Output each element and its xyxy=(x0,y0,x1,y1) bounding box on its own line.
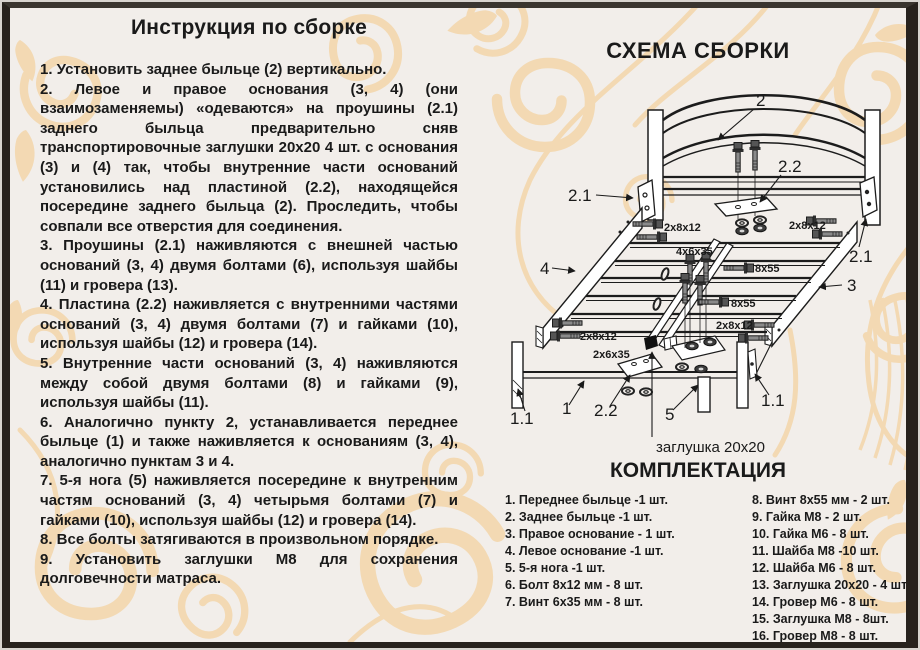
part-item: 3. Правое основание - 1 шт. xyxy=(505,526,752,543)
diagram-title: СХЕМА СБОРКИ xyxy=(478,38,918,64)
part-item: 1. Переднее быльце -1 шт. xyxy=(505,492,752,509)
instruction-step: 9. Установить заглушки М8 для сохранения… xyxy=(40,550,458,589)
parts-column-1: 1. Переднее быльце -1 шт. 2. Заднее быль… xyxy=(505,492,752,645)
callout-front-leg-left: 1.1 xyxy=(510,409,534,428)
callout-fifth-leg: 5 xyxy=(665,405,674,424)
right-base-drawing xyxy=(756,222,857,374)
bolt-label-2x8x12-topleft: 2х8х12 xyxy=(664,222,701,234)
bolt-label-2x8x12-midright: 2х8х12 xyxy=(716,320,753,332)
instruction-step: 4. Пластина (2.2) наживляется с внутренн… xyxy=(40,295,458,354)
instruction-step: 6. Аналогично пункту 2, устанавливается … xyxy=(40,413,458,472)
headboard-drawing xyxy=(638,95,880,235)
part-item: 16. Гровер М8 - 8 шт. xyxy=(752,628,901,645)
part-item: 10. Гайка М6 - 8 шт. xyxy=(752,526,901,543)
parts-title: КОМПЛЕКТАЦИЯ xyxy=(478,459,918,483)
part-item: 13. Заглушка 20х20 - 4 шт. xyxy=(752,577,901,594)
part-item: 14. Гровер М6 - 8 шт. xyxy=(752,594,901,611)
assembly-diagram: 2 2.2 2.1 2.1 4 3 1 2.2 5 1.1 1.1 заглуш… xyxy=(468,80,908,480)
instruction-step: 1. Установить заднее быльце (2) вертикал… xyxy=(40,60,458,80)
front-rail-drawing xyxy=(512,336,757,412)
part-item: 12. Шайба М6 - 8 шт. xyxy=(752,560,901,577)
callout-plate-top: 2.2 xyxy=(778,157,802,176)
part-item: 8. Винт 8х55 мм - 2 шт. xyxy=(752,492,901,509)
instruction-step: 7. 5-я нога (5) наживляется посередине к… xyxy=(40,471,458,530)
part-item: 7. Винт 6х35 мм - 8 шт. xyxy=(505,594,752,611)
screw-label-8x55-upper: 8х55 xyxy=(755,263,779,275)
part-item: 5. 5-я нога -1 шт. xyxy=(505,560,752,577)
part-item: 6. Болт 8х12 мм - 8 шт. xyxy=(505,577,752,594)
part-item: 15. Заглушка М8 - 8шт. xyxy=(752,611,901,628)
instructions-panel: Инструкция по сборке 1. Установить задне… xyxy=(40,16,458,589)
bolt-label-2x8x12-bottomleft: 2х8х12 xyxy=(580,331,617,343)
callout-lug-left: 2.1 xyxy=(568,186,592,205)
headboard-plate xyxy=(715,197,777,216)
callout-headboard: 2 xyxy=(756,91,765,110)
screw-label-4x6x35: 4х6х35 xyxy=(676,246,713,258)
part-item: 4. Левое основание -1 шт. xyxy=(505,543,752,560)
callout-front: 1 xyxy=(562,399,571,418)
parts-column-2: 8. Винт 8х55 мм - 2 шт. 9. Гайка М8 - 2 … xyxy=(752,492,901,645)
instruction-step: 8. Все болты затягиваются в произвольном… xyxy=(40,530,458,550)
screw-label-8x55-lower: 8х55 xyxy=(731,298,755,310)
plug-label: заглушка 20х20 xyxy=(656,439,765,456)
instruction-step: 3. Проушины (2.1) наживляются с внешней … xyxy=(40,236,458,295)
instructions-steps: 1. Установить заднее быльце (2) вертикал… xyxy=(40,60,458,589)
part-item: 11. Шайба М8 -10 шт. xyxy=(752,543,901,560)
assembly-instruction-sheet: Инструкция по сборке 1. Установить задне… xyxy=(0,0,920,650)
bolt-label-2x8x12-topright: 2х8х12 xyxy=(789,220,826,232)
callout-front-leg-right: 1.1 xyxy=(761,391,785,410)
fifth-leg xyxy=(698,377,710,412)
screw-label-2x6x35: 2х6х35 xyxy=(593,349,630,361)
callout-lug-right: 2.1 xyxy=(849,247,873,266)
callout-right-base: 3 xyxy=(847,276,856,295)
callout-plate-bottom: 2.2 xyxy=(594,401,618,420)
callout-left-base: 4 xyxy=(540,259,549,278)
part-item: 9. Гайка М8 - 2 шт. xyxy=(752,509,901,526)
instructions-title: Инструкция по сборке xyxy=(40,16,458,40)
transport-plug xyxy=(644,335,658,350)
part-item: 2. Заднее быльце -1 шт. xyxy=(505,509,752,526)
parts-list: 1. Переднее быльце -1 шт. 2. Заднее быль… xyxy=(505,492,901,645)
center-plate xyxy=(672,336,725,360)
right-lug xyxy=(860,177,877,217)
instruction-step: 2. Левое и правое основания (3, 4) (они … xyxy=(40,80,458,237)
instruction-step: 5. Внутренние части оснований (3, 4) наж… xyxy=(40,354,458,413)
